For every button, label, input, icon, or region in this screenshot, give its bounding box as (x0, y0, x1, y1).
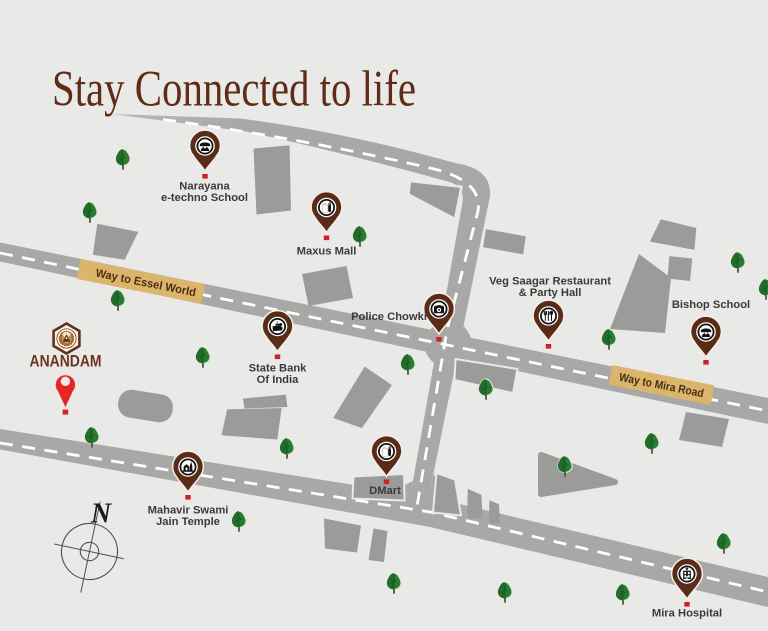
svg-text:DMart: DMart (369, 485, 401, 497)
svg-text:Stay Connected to life: Stay Connected to life (52, 62, 416, 118)
svg-text:Maxus Mall: Maxus Mall (297, 246, 357, 258)
svg-text:Bishop School: Bishop School (672, 299, 750, 311)
svg-text:ANANDAM: ANANDAM (30, 352, 102, 371)
svg-text:Mahavir SwamiJain Temple: Mahavir SwamiJain Temple (148, 505, 229, 529)
svg-text:Mira Hospital: Mira Hospital (652, 608, 722, 620)
svg-text:Police Chowki: Police Chowki (351, 311, 427, 323)
svg-text:N: N (90, 499, 113, 530)
